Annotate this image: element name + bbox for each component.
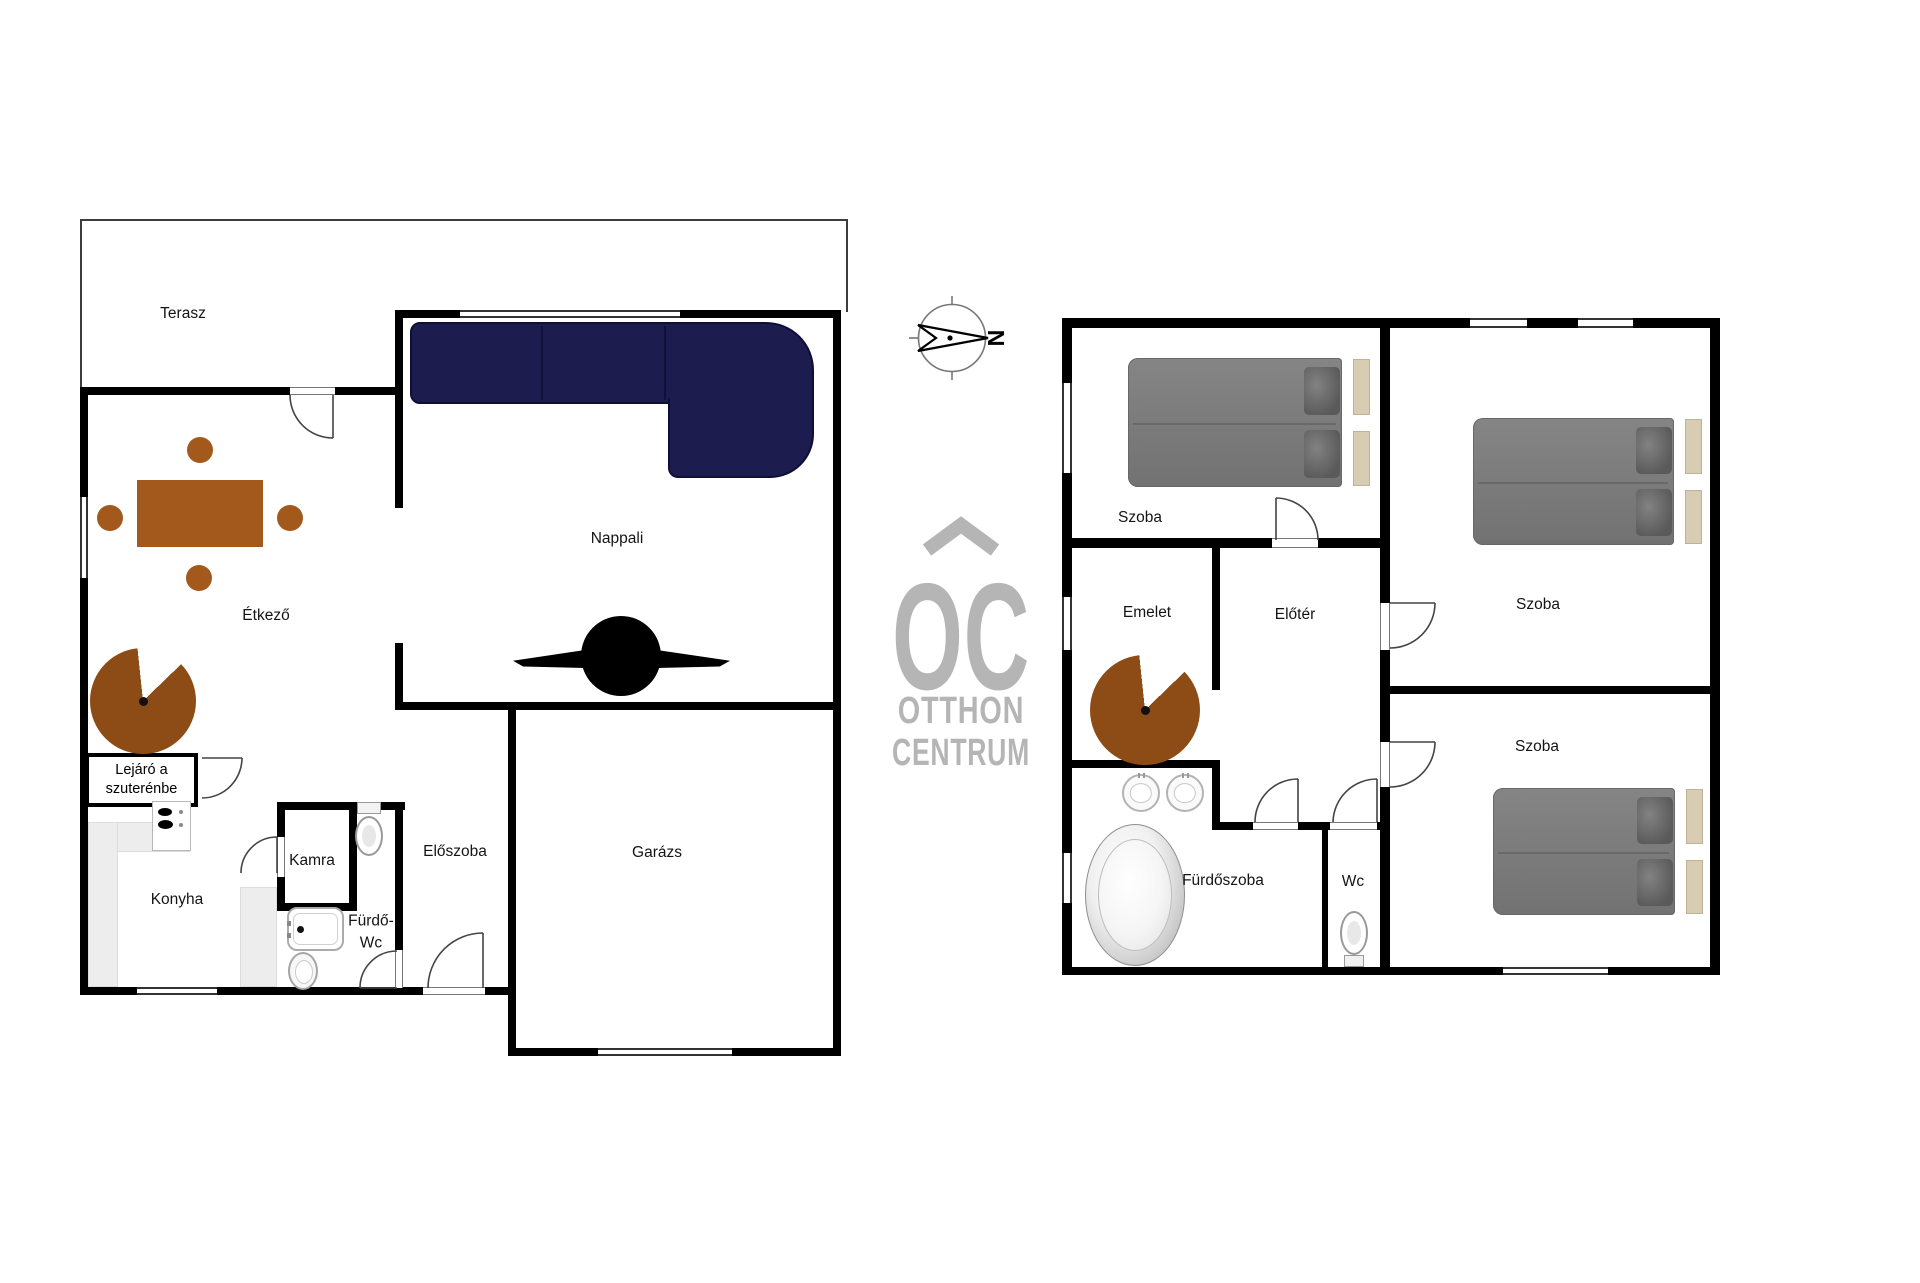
window-bedroom xyxy=(1503,967,1608,975)
bed-pillow xyxy=(1636,489,1672,536)
bed-pillow xyxy=(1304,430,1340,478)
kitchen-counter xyxy=(240,887,277,987)
window-bedroom xyxy=(1470,318,1527,328)
wall xyxy=(335,387,403,395)
bed-pillow xyxy=(1637,797,1673,844)
furdo-wc-line2: Wc xyxy=(348,932,394,954)
bed-pillow xyxy=(1636,427,1672,474)
bed-seam xyxy=(1133,423,1336,425)
toilet-bowl-upper xyxy=(1340,911,1368,955)
room-label-emelet: Emelet xyxy=(1123,604,1171,622)
wall xyxy=(1377,822,1390,830)
wall xyxy=(1527,318,1578,328)
bed-seam xyxy=(1478,482,1668,484)
sink-tap xyxy=(1182,773,1184,778)
bench-right xyxy=(657,650,730,668)
toilet-tank-upper xyxy=(1344,955,1364,967)
door-threshold xyxy=(1380,603,1390,650)
wall xyxy=(395,310,403,508)
room-label-szoba-3: Szoba xyxy=(1515,738,1559,756)
room-label-eloszoba: Előszoba xyxy=(423,843,487,861)
wall xyxy=(80,387,88,497)
wall xyxy=(349,810,357,903)
room-label-eloter: Előtér xyxy=(1275,606,1316,624)
bed-headboard xyxy=(1685,490,1702,545)
wall xyxy=(1212,548,1220,690)
toilet-bowl xyxy=(355,816,383,856)
room-label-konyha: Konyha xyxy=(151,891,204,909)
bed-seam xyxy=(1498,852,1669,854)
wall xyxy=(1322,830,1328,967)
wall xyxy=(485,987,516,995)
wall xyxy=(1062,318,1072,383)
double-bed xyxy=(1493,788,1703,915)
washbasin-inner xyxy=(295,960,313,984)
wall xyxy=(680,310,841,318)
wall xyxy=(395,643,403,708)
wall xyxy=(1062,318,1470,328)
wall xyxy=(277,877,285,903)
wall xyxy=(1062,538,1272,548)
double-bed xyxy=(1128,358,1370,487)
room-label-terasz: Terasz xyxy=(160,305,206,323)
bed-headboard xyxy=(1686,860,1703,915)
spiral-staircase-upper xyxy=(1090,655,1200,765)
bathtub-drain xyxy=(297,926,304,933)
furdo-wc-line1: Fürdő- xyxy=(348,910,394,932)
basement-label-line1: Lejáró a xyxy=(115,761,167,780)
sink-tap xyxy=(1143,773,1145,778)
wall xyxy=(80,387,290,395)
basement-stair-box: Lejáró a szuterénbe xyxy=(85,753,198,807)
entry-door-threshold xyxy=(423,987,485,995)
toilet-bowl-inner xyxy=(1347,921,1361,945)
garage-door-opening xyxy=(598,1048,732,1056)
dining-chair xyxy=(277,505,303,531)
pantry-door-threshold xyxy=(277,837,285,877)
sofa-section-top xyxy=(410,322,814,404)
room-label-furdo-wc: Fürdő- Wc xyxy=(348,910,394,953)
room-label-furdoszoba: Fürdőszoba xyxy=(1182,872,1264,890)
wall xyxy=(508,710,516,1056)
wall xyxy=(732,1048,841,1056)
dining-chair xyxy=(97,505,123,531)
stove-burner xyxy=(158,820,173,829)
room-label-wc: Wc xyxy=(1342,873,1364,891)
window-kitchen xyxy=(137,987,217,995)
terrace-wall-top xyxy=(80,219,848,221)
wall xyxy=(1062,473,1072,597)
dining-chair xyxy=(187,437,213,463)
bathroom-sink xyxy=(1122,774,1160,812)
compass-north-label: N xyxy=(983,325,1009,351)
bed-headboard xyxy=(1353,431,1370,487)
bathtub-tap xyxy=(287,933,291,938)
bath-door-threshold xyxy=(395,950,403,988)
wall xyxy=(1062,967,1503,975)
window-bedroom xyxy=(1062,383,1072,473)
wall xyxy=(217,987,423,995)
door-threshold xyxy=(1330,822,1377,830)
terrace-wall-right xyxy=(846,219,848,312)
wall xyxy=(1380,650,1390,742)
wall xyxy=(395,702,841,710)
double-bed xyxy=(1473,418,1702,545)
bed-headboard xyxy=(1353,359,1370,415)
stove-burner xyxy=(158,808,172,816)
bathtub-oval xyxy=(1085,824,1185,966)
sink-tap xyxy=(1138,773,1140,778)
bed-headboard xyxy=(1685,419,1702,474)
toilet xyxy=(357,802,381,814)
compass: N xyxy=(905,293,1025,389)
room-label-szoba-1: Szoba xyxy=(1118,509,1162,527)
wall xyxy=(1062,903,1072,975)
kitchen-counter xyxy=(88,822,118,987)
room-label-szoba-2: Szoba xyxy=(1516,596,1560,614)
room-label-kamra: Kamra xyxy=(289,852,335,870)
wall xyxy=(1608,967,1720,975)
window-livingroom xyxy=(460,310,680,318)
bathtub xyxy=(287,907,344,951)
wall xyxy=(277,802,405,810)
wall xyxy=(1298,822,1330,830)
room-label-nappali: Nappali xyxy=(591,530,644,548)
round-table-black xyxy=(581,616,661,696)
spiral-staircase xyxy=(90,648,196,754)
wall xyxy=(1212,822,1253,830)
dining-chair xyxy=(186,565,212,591)
sofa-seam xyxy=(541,326,543,400)
wall xyxy=(80,987,137,995)
bed-headboard xyxy=(1686,789,1703,844)
wall xyxy=(1710,318,1720,975)
sink-basin xyxy=(1130,783,1152,803)
window-bathroom xyxy=(1062,853,1072,903)
room-label-etkezo: Étkező xyxy=(242,607,289,625)
window-landing xyxy=(1062,597,1072,650)
door-threshold xyxy=(1380,742,1390,787)
brand-logo: OC OTTHON CENTRUM xyxy=(880,512,1042,772)
wall xyxy=(1318,538,1390,548)
wall xyxy=(395,802,403,950)
bench-left xyxy=(513,650,585,668)
stove-knob xyxy=(179,810,183,814)
wall xyxy=(1062,650,1072,853)
bed-pillow xyxy=(1637,859,1673,906)
door-threshold xyxy=(1272,538,1318,548)
bathroom-sink xyxy=(1166,774,1204,812)
room-label-garazs: Garázs xyxy=(632,844,682,862)
door-threshold xyxy=(290,387,335,395)
washbasin xyxy=(288,952,318,990)
bathtub-tap xyxy=(287,921,291,926)
terrace-wall-left xyxy=(80,219,82,389)
stove xyxy=(152,801,191,851)
window-bedroom xyxy=(1578,318,1633,328)
toilet-bowl-inner xyxy=(362,825,376,847)
upper-floor-plan xyxy=(1050,0,1920,1283)
bathtub-oval-inner xyxy=(1098,839,1172,951)
wall xyxy=(833,310,841,1056)
logo-name-line1: OTTHON xyxy=(898,690,1024,733)
wall xyxy=(1380,318,1390,603)
wall xyxy=(277,810,285,837)
dining-table xyxy=(137,480,263,547)
basement-label-line2: szuterénbe xyxy=(106,780,178,799)
wall xyxy=(1390,686,1710,694)
bed-pillow xyxy=(1304,367,1340,415)
logo-name-line2: CENTRUM xyxy=(892,732,1030,775)
wall xyxy=(1633,318,1720,328)
floorplan-canvas: Lejáró a szuterénbe xyxy=(0,0,1920,1283)
stove-knob xyxy=(179,823,183,827)
window-dining xyxy=(80,497,88,578)
sink-basin xyxy=(1174,783,1196,803)
wall xyxy=(1380,787,1390,975)
door-threshold xyxy=(1253,822,1298,830)
sofa-seam xyxy=(664,326,666,400)
wall xyxy=(395,310,460,318)
sofa-section-corner xyxy=(668,398,814,478)
sink-tap xyxy=(1187,773,1189,778)
wall xyxy=(1212,768,1220,830)
wall xyxy=(508,1048,598,1056)
